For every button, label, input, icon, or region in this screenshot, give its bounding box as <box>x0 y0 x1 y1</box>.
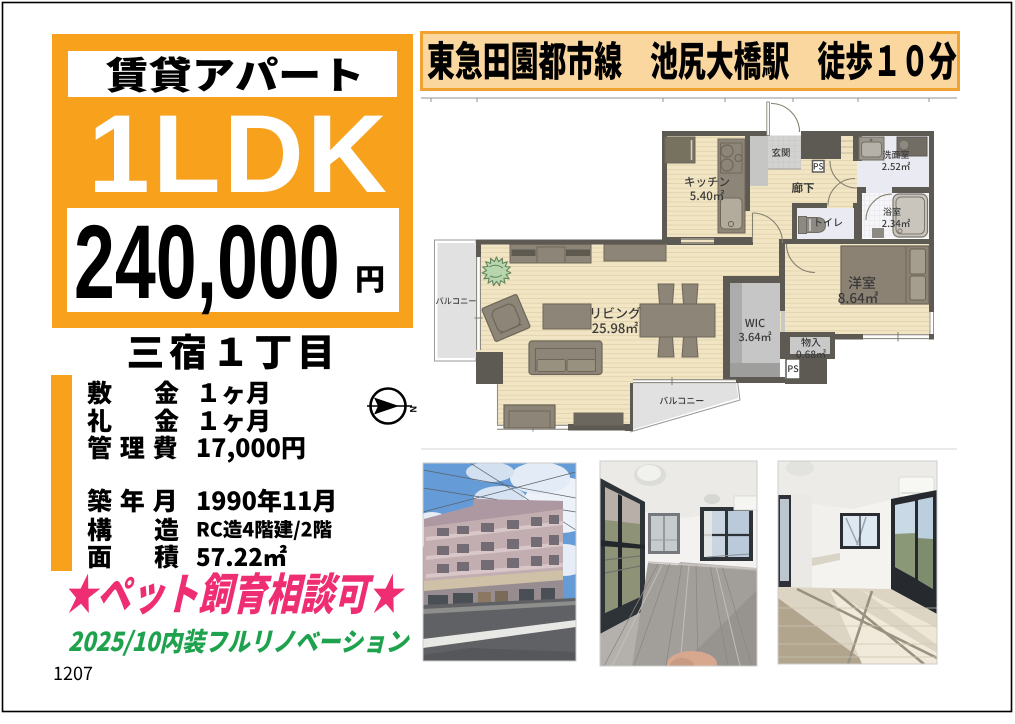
svg-text:N: N <box>408 406 418 413</box>
